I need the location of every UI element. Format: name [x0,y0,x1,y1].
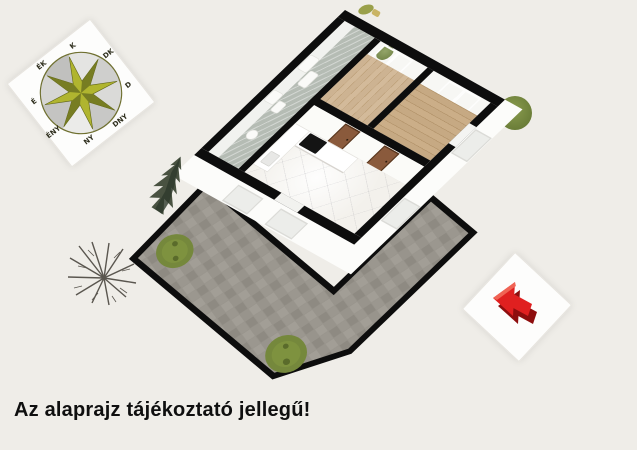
window-sill-pot [371,8,381,17]
direction-arrow-icon [488,278,546,334]
tree-branches [68,242,136,305]
compass-card: É ÉK K DK D DNY NY ÉNY [7,19,156,168]
floorplan-image: É ÉK K DK D DNY NY ÉNY Az alaprajz tájék… [0,0,637,450]
compass-rose-icon [8,20,154,166]
door-knob [346,139,349,141]
bare-tree [64,238,144,312]
disclaimer-caption: Az alaprajz tájékoztató jellegű! [14,399,310,422]
door-knob [385,161,388,163]
